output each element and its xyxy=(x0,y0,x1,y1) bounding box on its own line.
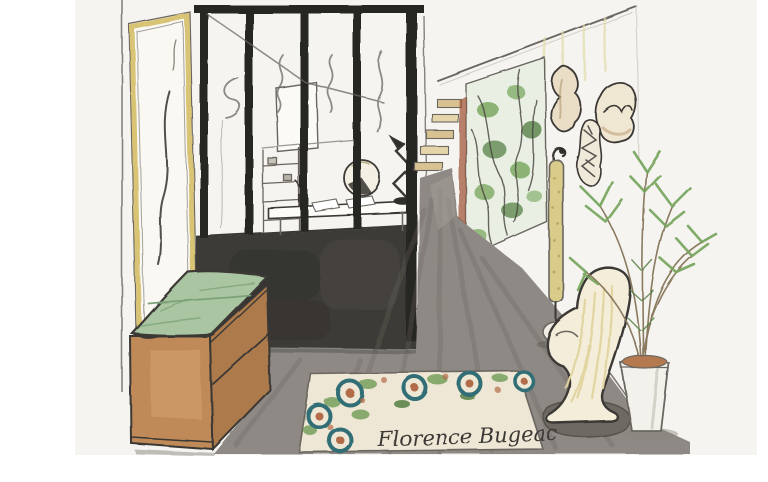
rug-medallion xyxy=(404,377,426,399)
partition-top-rail xyxy=(194,5,424,13)
rug-medallion xyxy=(459,373,481,395)
rug-medallion xyxy=(308,405,330,427)
stair-step xyxy=(437,99,461,107)
illustration: Florence Bugeac xyxy=(0,0,768,482)
plant-soil xyxy=(623,356,667,369)
stair-step xyxy=(426,130,453,138)
partition-mullion-1 xyxy=(200,8,208,238)
stair-step xyxy=(432,114,458,122)
stair-step xyxy=(420,146,448,154)
rug-medallion xyxy=(338,381,362,405)
screenshot-canvas: Florence Bugeac xyxy=(0,0,768,482)
stair-step xyxy=(414,162,442,170)
panel-rust-edge xyxy=(459,96,466,229)
office-whiteboard xyxy=(276,82,318,152)
partition-mullion-4 xyxy=(353,9,361,229)
interior-sketch: Florence Bugeac xyxy=(0,0,768,482)
lamp-body xyxy=(549,160,563,302)
plant-wall-panel xyxy=(459,58,547,258)
rug-medallion xyxy=(515,372,533,390)
office-sphere-chair xyxy=(344,160,380,196)
partition-mullion-3 xyxy=(300,9,308,231)
rug-medallion xyxy=(329,429,351,451)
